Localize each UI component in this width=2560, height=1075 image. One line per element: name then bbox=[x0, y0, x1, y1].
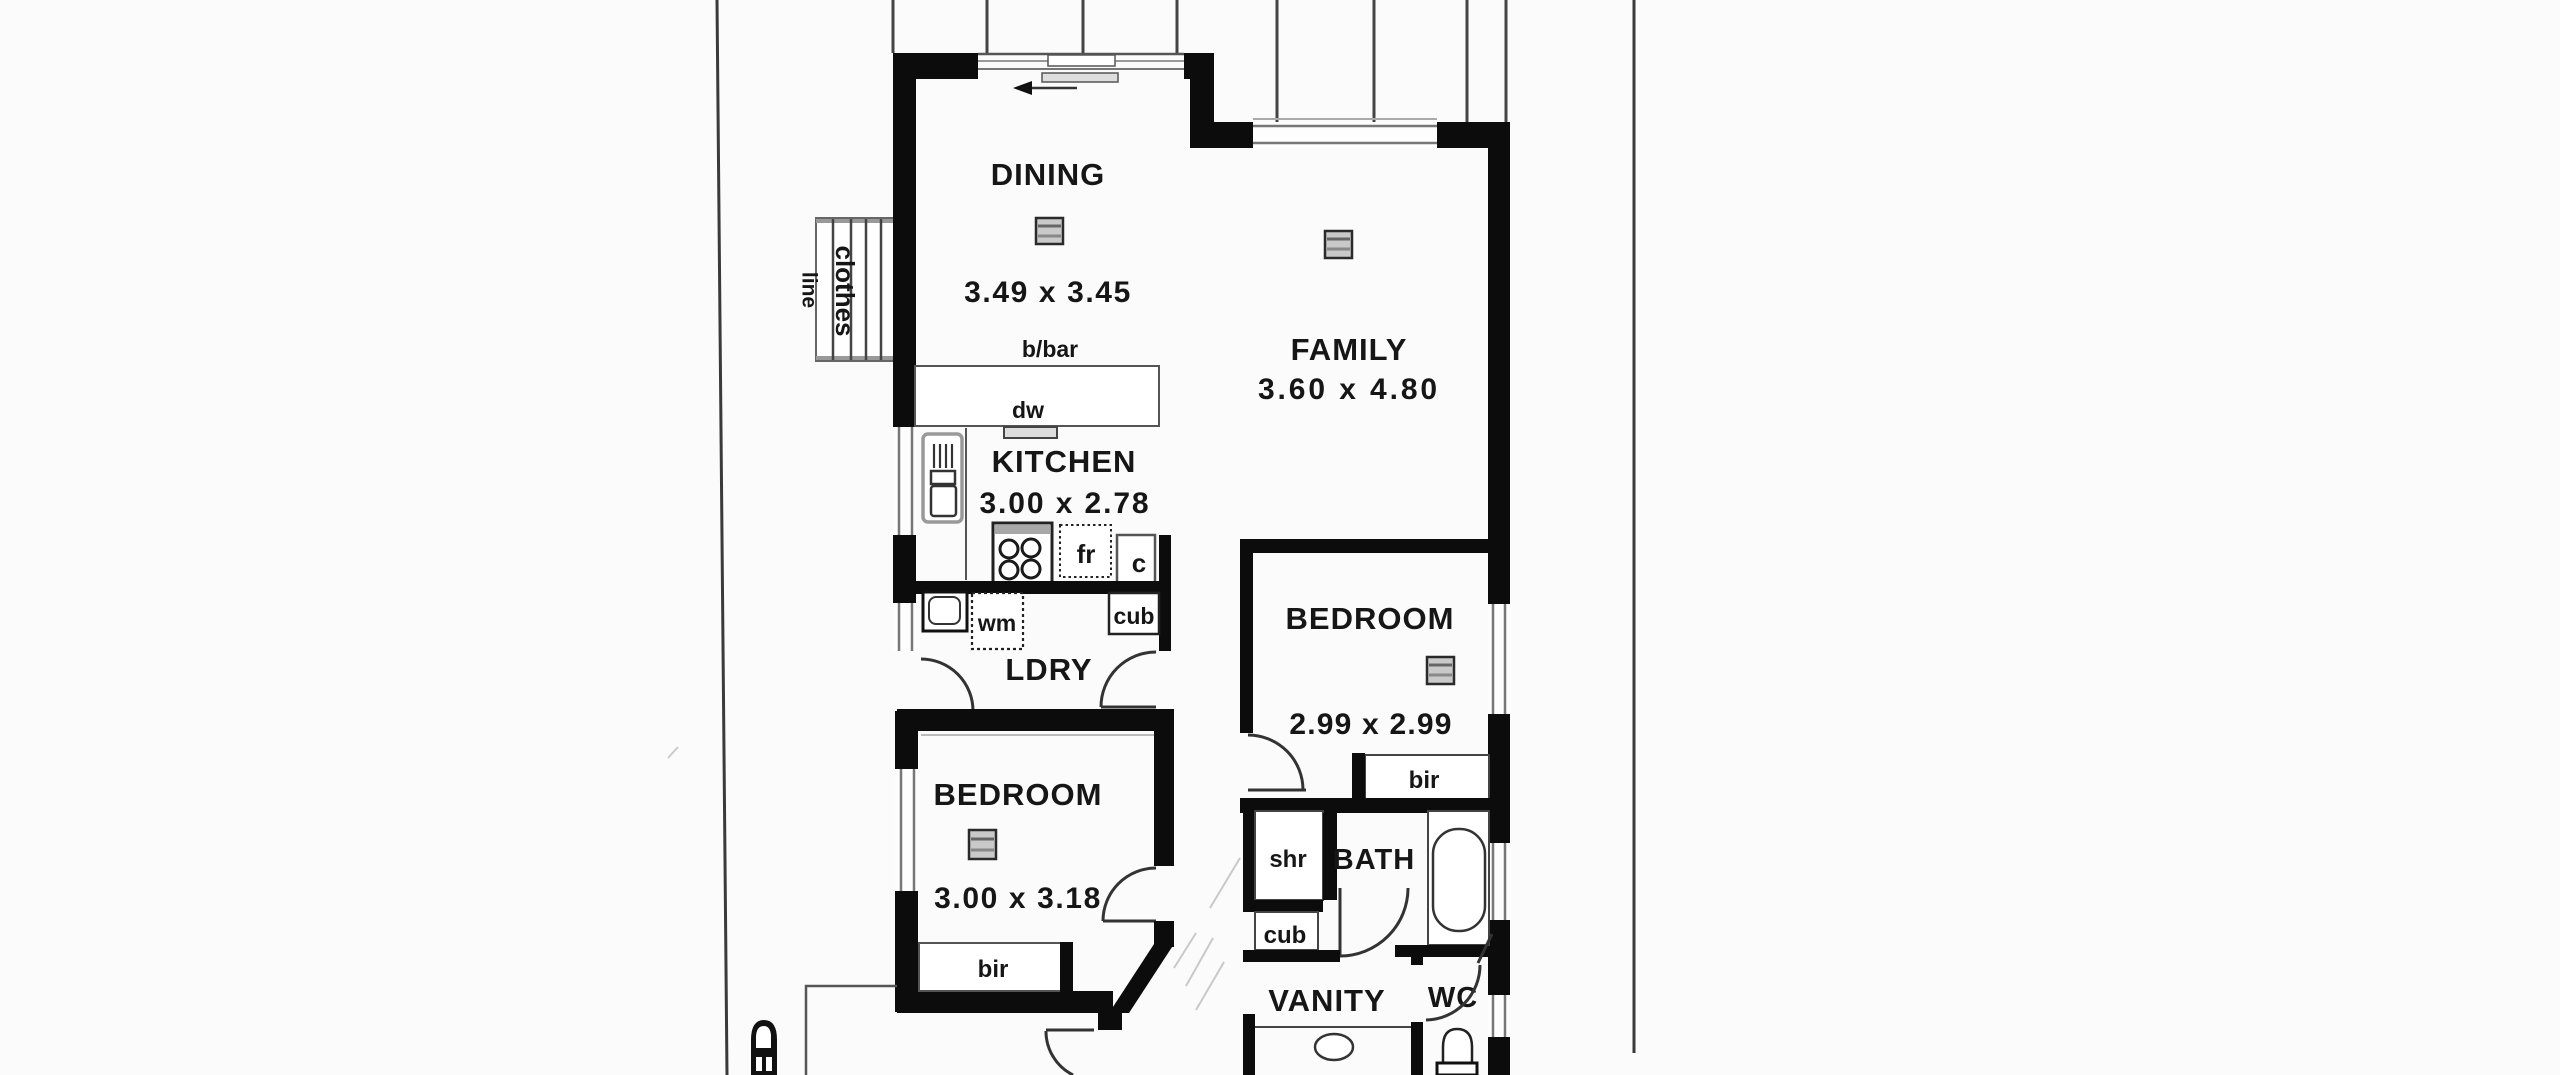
svg-text:3.00 x 2.78: 3.00 x 2.78 bbox=[979, 487, 1150, 520]
svg-text:line: line bbox=[797, 272, 820, 308]
svg-text:shr: shr bbox=[1269, 846, 1306, 873]
svg-text:3.49 x 3.45: 3.49 x 3.45 bbox=[964, 276, 1132, 309]
svg-text:clothes: clothes bbox=[830, 245, 860, 336]
svg-text:VANITY: VANITY bbox=[1268, 983, 1385, 1018]
svg-text:BEDROOM: BEDROOM bbox=[1286, 601, 1455, 636]
svg-text:dw: dw bbox=[1012, 397, 1044, 423]
svg-text:BATH: BATH bbox=[1333, 844, 1415, 876]
svg-text:c: c bbox=[1132, 548, 1146, 578]
svg-text:wm: wm bbox=[977, 610, 1016, 636]
svg-text:cub: cub bbox=[1264, 922, 1307, 949]
svg-text:DINING: DINING bbox=[991, 157, 1106, 192]
svg-text:3.00 x 3.18: 3.00 x 3.18 bbox=[934, 882, 1102, 915]
svg-text:fr: fr bbox=[1077, 539, 1096, 569]
svg-text:3.60 x 4.80: 3.60 x 4.80 bbox=[1258, 373, 1440, 406]
svg-text:bir: bir bbox=[1409, 767, 1440, 794]
svg-text:2.99 x 2.99: 2.99 x 2.99 bbox=[1289, 708, 1452, 741]
svg-text:bir: bir bbox=[978, 956, 1009, 983]
svg-text:b/bar: b/bar bbox=[1022, 336, 1078, 362]
svg-text:LDRY: LDRY bbox=[1005, 652, 1092, 687]
svg-text:BEDROOM: BEDROOM bbox=[934, 777, 1103, 812]
svg-text:cub: cub bbox=[1114, 603, 1155, 629]
svg-text:KITCHEN: KITCHEN bbox=[992, 444, 1137, 479]
svg-text:FAMILY: FAMILY bbox=[1291, 332, 1408, 367]
